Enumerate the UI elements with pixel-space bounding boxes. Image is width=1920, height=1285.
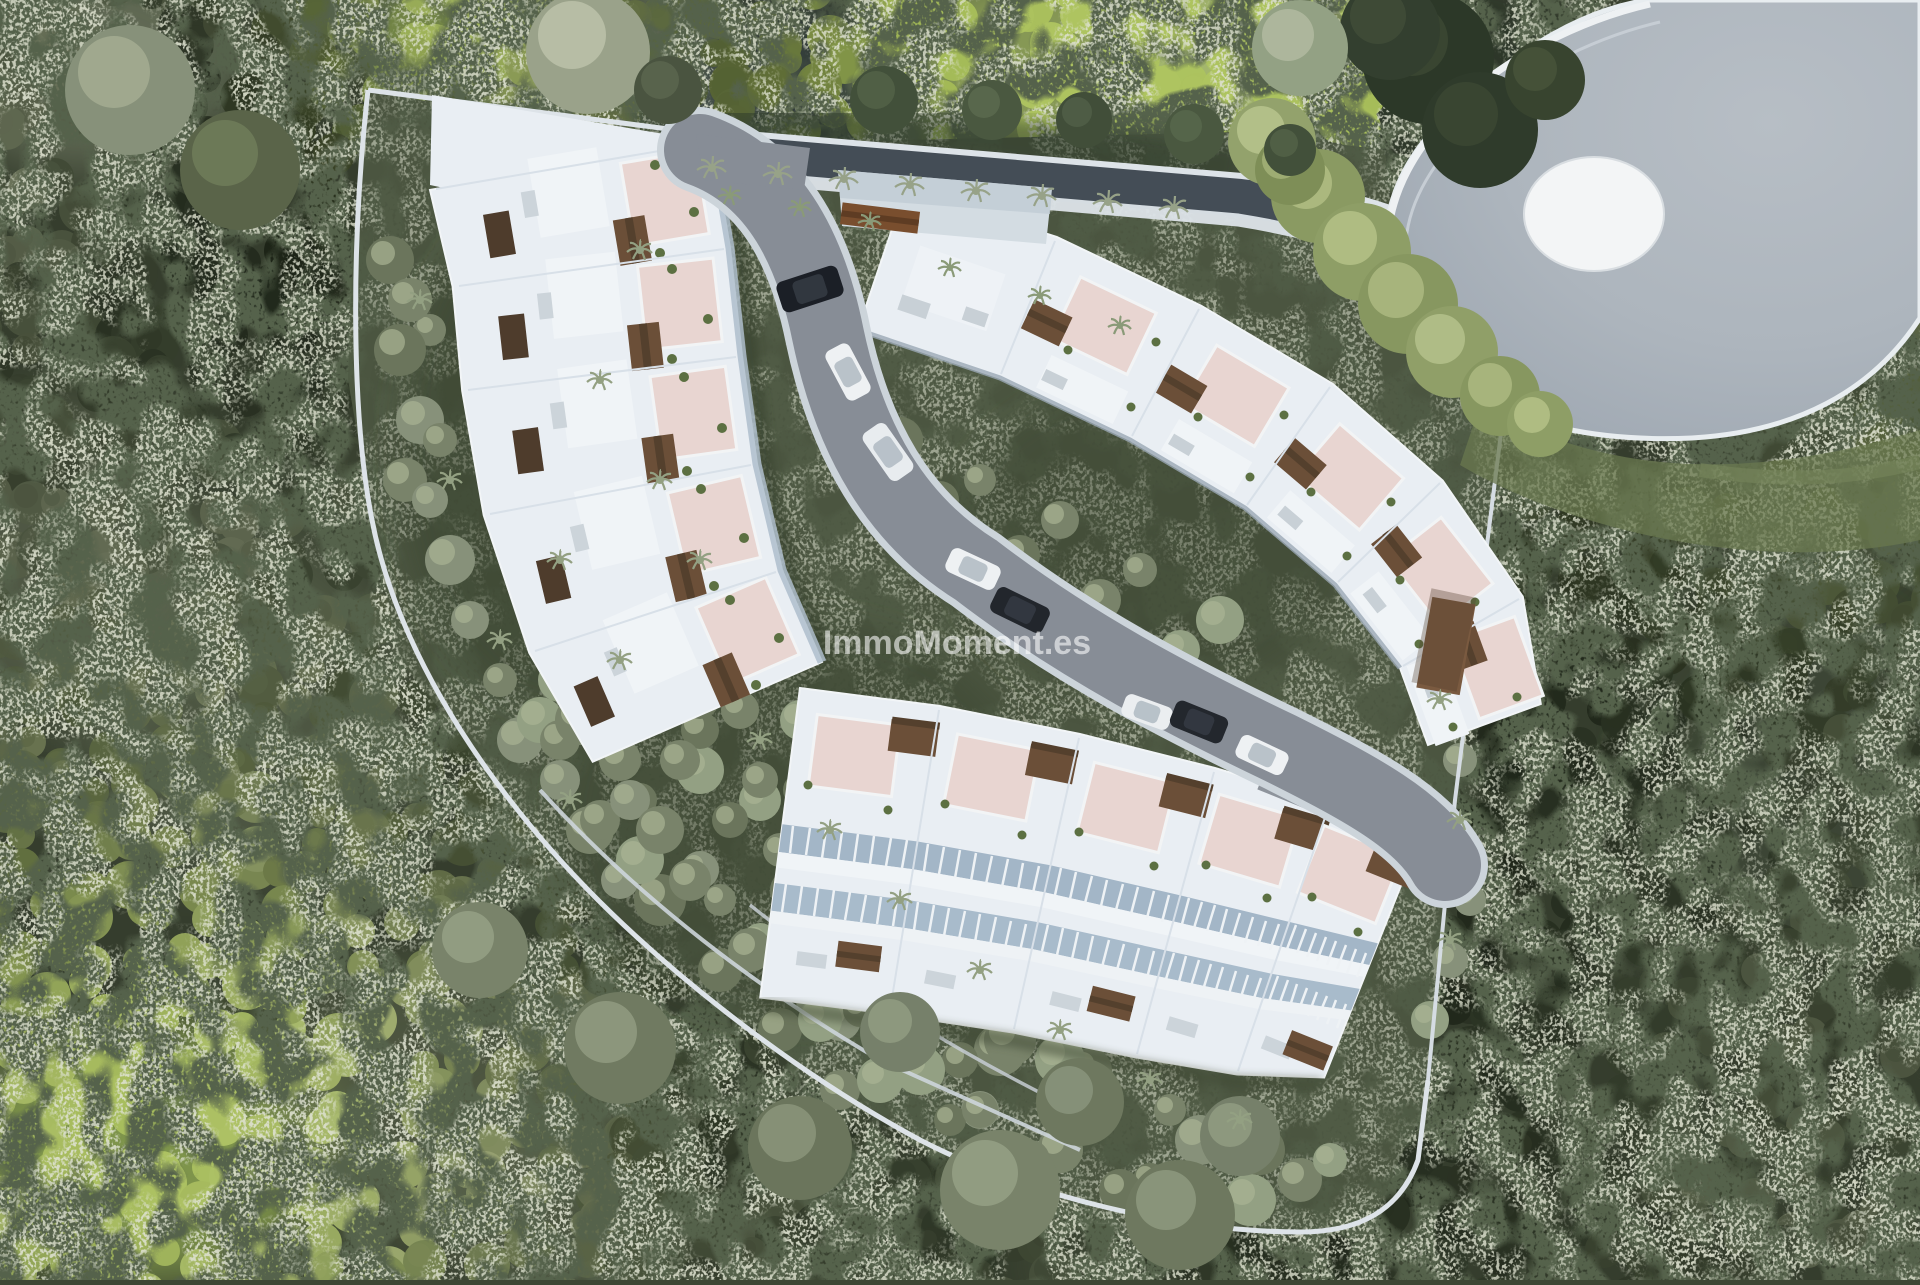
svg-text:ImmoMoment.es: ImmoMoment.es (823, 624, 1091, 662)
